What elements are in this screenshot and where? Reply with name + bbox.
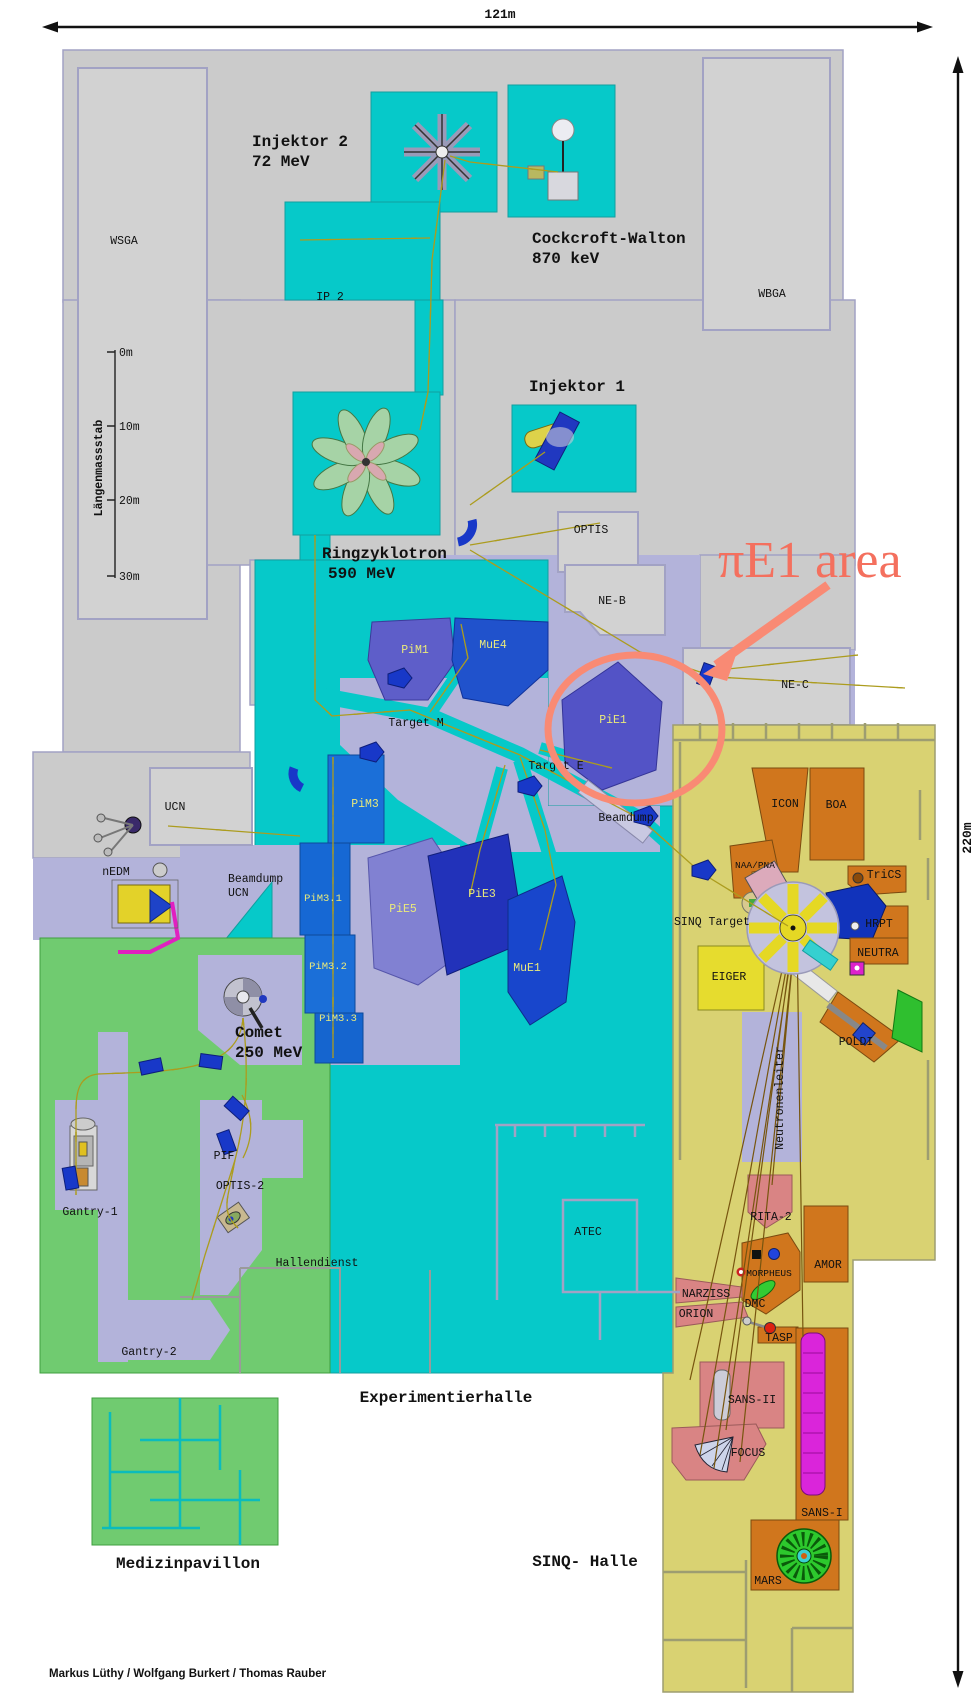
gantry1-label: Gantry-1 [62, 1206, 117, 1219]
mue4-label: MuE4 [479, 639, 507, 652]
wsga-room [78, 68, 207, 619]
narziss-label: NARZISS [682, 1288, 730, 1301]
naa-pna-label: NAA/PNA [735, 860, 775, 871]
scale-tick-0m: 0m [119, 347, 133, 360]
morpheus-label: MORPHEUS [746, 1268, 792, 1279]
optis-label: OPTIS [574, 524, 609, 537]
ip2-label: IP 2 [316, 291, 344, 304]
eiger-label: EIGER [712, 971, 747, 984]
cockcroft-label: Cockcroft-Walton [532, 230, 686, 248]
pim1-label: PiM1 [401, 644, 429, 657]
beamdump-ucn-label-1: Beamdump [228, 873, 283, 886]
comet-energy: 250 MeV [235, 1044, 303, 1062]
target-m-label: Target M [388, 717, 443, 730]
pie5-label: PiE5 [389, 903, 417, 916]
mue1-area [508, 876, 575, 1025]
pim3-1-label: PiM3.1 [304, 893, 342, 905]
scale-tick-10m: 10m [119, 421, 140, 434]
scale-bar-title: Längenmassstab [93, 420, 106, 517]
sans1-detector-tube [801, 1333, 825, 1495]
medical-area [40, 938, 330, 1545]
hallendienst-label: Hallendienst [276, 1257, 359, 1270]
ucn-label: UCN [165, 801, 186, 814]
injektor2-label: Injektor 2 [252, 133, 348, 151]
amor-label: AMOR [814, 1259, 842, 1272]
optis-room [558, 512, 638, 572]
ringzyklotron-energy: 590 MeV [328, 565, 396, 583]
beamdump-ucn-label-2: UCN [228, 887, 249, 900]
nedm-label: nEDM [102, 866, 130, 879]
hrpt-label: HRPT [865, 918, 893, 931]
pim3-1-area [300, 843, 350, 935]
comet-label: Comet [235, 1024, 283, 1042]
wbga-label: WBGA [758, 288, 786, 301]
orion-label: ORION [679, 1308, 714, 1321]
pim3-3-label: PiM3.3 [319, 1013, 357, 1025]
arrowhead-left-icon [42, 22, 58, 33]
width-dimension-label: 121m [484, 7, 515, 22]
poldi-label: POLDI [839, 1036, 874, 1049]
rita2-label: RITA-2 [750, 1211, 792, 1224]
beamdump-label: Beamdump [598, 812, 653, 825]
boa-label: BOA [826, 799, 847, 812]
medizinpavillon-label: Medizinpavillon [116, 1555, 260, 1573]
ne-b-label: NE-B [598, 595, 626, 608]
neutronenleiter-label: Neutronenleiter [774, 1046, 787, 1150]
arrowhead-down-icon [953, 1671, 964, 1688]
pim3-2-area [305, 935, 355, 1013]
sans1-label: SANS-I [801, 1507, 842, 1520]
scale-tick-30m: 30m [119, 571, 140, 584]
mars-label: MARS [754, 1575, 782, 1588]
pie3-label: PiE3 [468, 888, 496, 901]
icon-label: ICON [771, 798, 799, 811]
dmc-label: DMC [745, 1298, 766, 1311]
pie1-annotation-label: πE1 area [718, 532, 902, 589]
atec-label: ATEC [574, 1226, 602, 1239]
credits-label: Markus Lüthy / Wolfgang Burkert / Thomas… [49, 1668, 327, 1680]
focus-label: FOCUS [731, 1447, 766, 1460]
ne-c-label: NE-C [781, 679, 809, 692]
optis2-label: OPTIS-2 [216, 1180, 264, 1193]
arrowhead-right-icon [917, 22, 933, 33]
arrowhead-up-icon [953, 56, 964, 73]
injektor1-room [512, 405, 636, 492]
pif-label: PIF [214, 1150, 235, 1163]
pim3-2-label: PiM3.2 [309, 961, 347, 973]
gantry2-label: Gantry-2 [121, 1346, 176, 1359]
psi-facility-map: Injektor 2 72 MeV Cockcroft-Walton 870 k… [0, 0, 976, 1704]
injektor2-energy: 72 MeV [252, 153, 310, 171]
trics-label: TriCS [867, 869, 902, 882]
sinq-halle-label: SINQ- Halle [532, 1553, 638, 1571]
height-dimension-label: 220m [960, 822, 975, 853]
cockcroft-energy: 870 keV [532, 250, 600, 268]
boa-station [810, 768, 864, 860]
scale-tick-20m: 20m [119, 495, 140, 508]
experimentierhalle-label: Experimentierhalle [360, 1389, 533, 1407]
pie1-label: PiE1 [599, 714, 627, 727]
sinq-target-label: SINQ Target [674, 916, 750, 929]
ringzyklotron-label: Ringzyklotron [322, 545, 447, 563]
facility-map-page: Injektor 2 72 MeV Cockcroft-Walton 870 k… [0, 0, 976, 1704]
tasp-label: TASP [765, 1332, 793, 1345]
pim3-label: PiM3 [351, 798, 379, 811]
wsga-label: WSGA [110, 235, 138, 248]
injektor1-label: Injektor 1 [529, 378, 625, 396]
neutra-label: NEUTRA [857, 947, 899, 960]
sans2-label: SANS-II [728, 1394, 776, 1407]
mue1-label: MuE1 [513, 962, 541, 975]
